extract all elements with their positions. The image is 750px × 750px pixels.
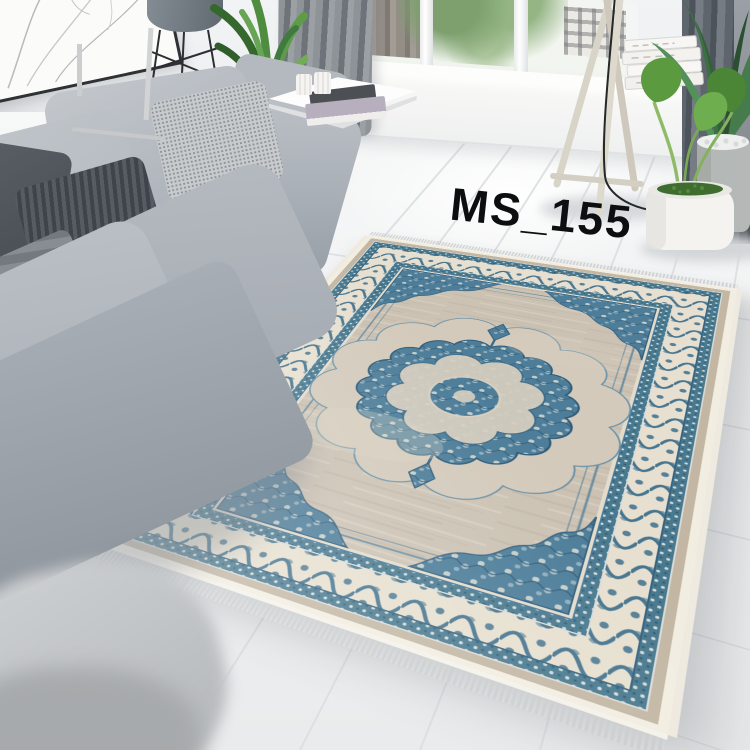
philodendron-plant — [630, 40, 750, 258]
white-plant-pot — [646, 181, 734, 250]
candle-holder — [314, 72, 331, 94]
side-table-leg — [77, 44, 82, 96]
living-room-product-photo: MS_155 — [0, 0, 750, 750]
candle-holder — [296, 74, 312, 95]
